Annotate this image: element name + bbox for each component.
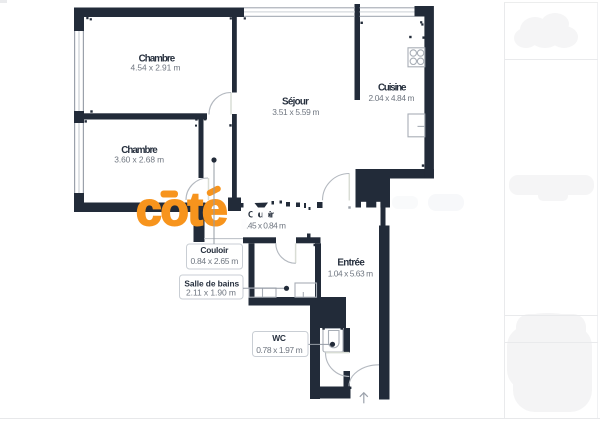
svg-text:1.04 x 5.63 m: 1.04 x 5.63 m [328,268,373,278]
svg-text:0.84 x 2.65 m: 0.84 x 2.65 m [190,256,238,266]
svg-text:3.60 x 2.68 m: 3.60 x 2.68 m [114,155,164,165]
svg-text:2.45 x 0.84 m: 2.45 x 0.84 m [242,220,286,230]
svg-text:0.78 x 1.97 m: 0.78 x 1.97 m [256,345,303,355]
svg-text:Entrée: Entrée [337,257,365,268]
svg-text:Couloir: Couloir [248,210,274,220]
svg-text:Séjour: Séjour [282,97,309,108]
svg-text:2.04 x 4.84 m: 2.04 x 4.84 m [369,93,415,103]
svg-text:Couloir: Couloir [200,245,229,255]
svg-text:2.11 x 1.90 m: 2.11 x 1.90 m [186,287,236,297]
svg-text:3.51 x 5.59 m: 3.51 x 5.59 m [272,107,319,117]
svg-text:WC: WC [272,333,286,343]
svg-text:4.54 x 2.91 m: 4.54 x 2.91 m [131,63,181,73]
